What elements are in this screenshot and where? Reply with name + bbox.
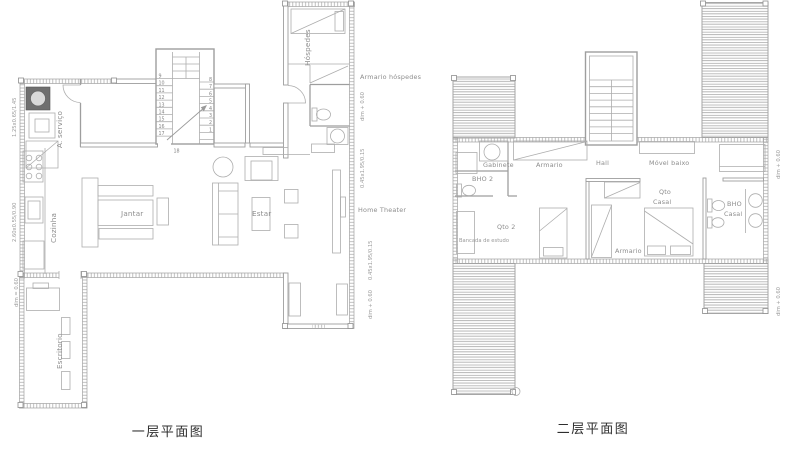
stair-step-number: 16	[159, 124, 165, 130]
bidet-icon-casal	[708, 217, 725, 228]
caption-floor1: 一层平面图	[132, 425, 205, 440]
room-label-servico: A. serviço	[55, 111, 64, 148]
deck-top-left	[452, 76, 516, 139]
kitchen-sink-icon	[25, 197, 43, 223]
living-furniture	[213, 148, 346, 254]
stair-step-number: 6	[209, 91, 212, 97]
window-dim-label: 2.60x0.55/0.90	[12, 203, 18, 242]
room-label-qto-casal: Qto	[659, 188, 671, 196]
bed-icon-qto2	[540, 208, 568, 258]
stair-step-number: 14	[159, 110, 165, 116]
room-label-hall: Hall	[596, 159, 609, 167]
washbasin-icon-guest	[327, 128, 348, 145]
bed-icon-qto-casal	[645, 208, 694, 256]
washing-machine-icon	[26, 87, 50, 110]
floor1-plan: 9 10 11 12 13 14 15 16 17 8 7 6 5 4 3 2 …	[12, 1, 422, 440]
tv-panel-icon	[333, 170, 346, 253]
room-label-bho2: BHO 2	[472, 175, 493, 183]
window-dim-label: 0.45x1.95/0.15	[368, 241, 374, 280]
pouf-icon	[285, 190, 299, 204]
toilet-icon-bho2	[457, 184, 476, 197]
dresser-icon	[720, 145, 766, 172]
stairs-floor1: 9 10 11 12 13 14 15 16 17 8 7 6 5 4 3 2 …	[156, 49, 214, 155]
room-label-armario-mid: Armario	[615, 247, 642, 255]
stair-step-number: 5	[209, 99, 212, 105]
label-armario-hospedes: Armario hóspedes	[360, 73, 422, 81]
stair-step-number: 2	[209, 120, 212, 126]
hall-walls	[214, 84, 287, 147]
level-dim-label: dim = 0.60	[14, 278, 20, 307]
deck-top-right	[701, 1, 769, 138]
cabinet-icon	[337, 284, 348, 315]
deck-bottom-right	[703, 264, 769, 314]
qto2-room	[457, 208, 568, 258]
stair-step-number: 12	[159, 95, 165, 101]
room-label-bho-casal: BHO	[727, 200, 742, 208]
room-label-hospedes: Hóspedes	[303, 29, 312, 66]
laundry-room	[26, 79, 158, 168]
room-label-jantar: Jantar	[120, 209, 143, 218]
stair-step-number: 17	[159, 131, 165, 137]
deck-bottom-left	[452, 264, 521, 396]
kitchen	[23, 148, 45, 274]
stair-step-number: 10	[159, 81, 165, 87]
wardrobe-icon-mid-lower	[592, 205, 612, 258]
stair-step-number: 11	[159, 88, 165, 94]
sink-icon-gabinete	[484, 144, 500, 160]
laundry-sink-icon	[29, 113, 55, 138]
toilet-icon-guest	[312, 108, 331, 121]
stair-step-number: 4	[209, 106, 212, 112]
stair-step-number: 8	[209, 77, 212, 83]
stair-step-number: 13	[159, 102, 165, 108]
desk-icon	[27, 283, 60, 311]
room-label-qto2: Qto 2	[497, 223, 516, 231]
level-dim-label: dim + 0.60	[360, 92, 366, 121]
sink-icon-casal	[749, 214, 763, 228]
floorplan-drawing: 9 10 11 12 13 14 15 16 17 8 7 6 5 4 3 2 …	[0, 0, 800, 456]
container-guest	[283, 1, 355, 329]
cabinet-icon	[289, 283, 301, 316]
sink-icon-casal	[749, 194, 763, 208]
stair-step-number: 18	[174, 149, 180, 155]
movel-baixo-icon	[640, 142, 695, 154]
floorplan-sheet: 9 10 11 12 13 14 15 16 17 8 7 6 5 4 3 2 …	[0, 0, 800, 456]
door-swing-guest	[288, 86, 306, 104]
room-label-bho-casal: Casal	[724, 210, 742, 218]
level-dim-label: dim + 0.60	[368, 290, 374, 319]
stair-step-number: 1	[209, 127, 212, 133]
sofa-icon	[213, 183, 239, 245]
guest-bed-icon	[291, 9, 345, 34]
caption-floor2: 二层平面图	[557, 422, 630, 437]
stair-step-number: 3	[209, 113, 212, 119]
container-office	[18, 272, 87, 409]
stairs-floor2	[586, 52, 638, 145]
window-dim-label: 0.45x1.95/0.15	[360, 149, 366, 188]
stair-step-number: 7	[209, 84, 212, 90]
toilet-icon-casal	[708, 199, 725, 212]
room-label-qto-casal: Casal	[653, 198, 671, 206]
room-label-escritorio: Escritorio	[55, 333, 64, 369]
room-label-movel-baixo: Móvel baixo	[649, 159, 689, 167]
room-label-gabinete: Gabinete	[483, 161, 514, 169]
round-table-icon	[213, 157, 233, 177]
wardrobe-icon-mid-upper	[605, 182, 641, 198]
stair-step-number: 15	[159, 117, 165, 123]
wardrobe-icon-top	[514, 141, 588, 160]
study-bench-icon	[457, 212, 475, 254]
fridge-icon	[23, 241, 44, 269]
room-label-estar: Estar	[252, 209, 271, 218]
shelf-icon	[62, 372, 71, 390]
pouf-icon	[285, 225, 299, 239]
level-dim-label: dim + 0.60	[776, 150, 782, 179]
label-home-theater: Home Theater	[358, 206, 406, 214]
floor2-plan: Gabinete BHO 2 Armario Hall Móvel baixo …	[452, 1, 783, 437]
room-label-armario-top: Armario	[536, 161, 563, 169]
level-dim-label: dim + 0.60	[776, 287, 782, 316]
shelf-icon	[62, 318, 71, 335]
stair-step-number: 9	[159, 74, 162, 80]
armchair-icon	[245, 157, 278, 181]
room-label-cozinha: Cozinha	[49, 213, 58, 243]
window-dim-label: 1.25x0.65/1.45	[12, 98, 18, 137]
label-bancada: Bancada de estudo	[459, 238, 509, 244]
door-swing-service	[63, 85, 81, 103]
